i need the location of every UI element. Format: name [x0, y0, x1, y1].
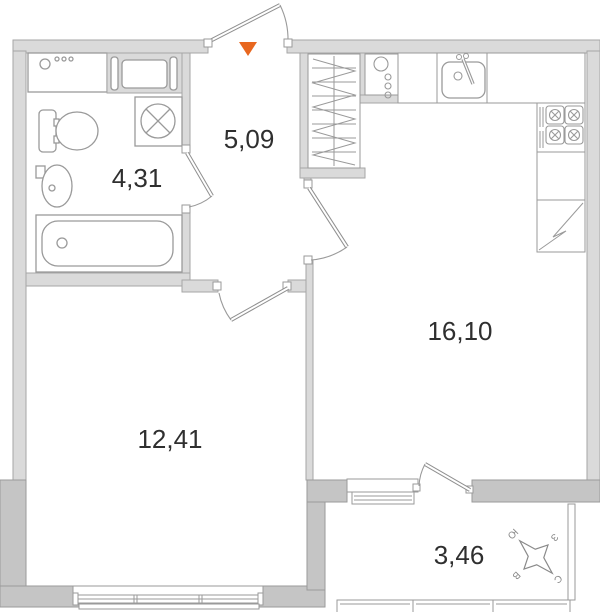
wall-bathroom-bottom [26, 273, 190, 286]
corner-counter-icon [537, 152, 585, 252]
entrance-marker-icon [239, 42, 257, 56]
wardrobe-icon [308, 54, 360, 168]
wall-under-wardrobe [300, 168, 365, 178]
laundry-place-icon [135, 97, 182, 146]
balcony-door [413, 464, 473, 493]
room-door [213, 282, 291, 320]
wall-balcony-top-left [307, 480, 347, 502]
label-bedroom-area: 12,41 [137, 424, 202, 454]
label-hallway-area: 5,09 [224, 124, 275, 154]
kitchen-counter [398, 53, 585, 103]
bathtub-icon [36, 215, 182, 272]
label-bathroom-area: 4,31 [112, 163, 163, 193]
wall-top-left [13, 40, 208, 53]
floor-plan: 4,31 5,09 16,10 12,41 3,46 С Ю З В [0, 0, 600, 612]
washing-machine-icon [28, 53, 107, 92]
window-balcony-door-side [347, 479, 418, 504]
wall-bathroom-right-upper [182, 53, 190, 152]
compass-west-label: З [548, 531, 560, 543]
towel-dryer-icon [107, 53, 182, 93]
water-heater-icon [365, 54, 398, 98]
wall-under-cabinet [360, 95, 400, 103]
stove-icon [537, 103, 585, 152]
compass-south-label: Ю [505, 526, 520, 541]
wall-balcony-top-right [472, 480, 600, 502]
wall-right [587, 51, 600, 480]
kitchen-door [304, 180, 347, 264]
washbasin-icon [36, 165, 72, 207]
window-room [73, 586, 263, 609]
wall-top-right [287, 40, 600, 53]
wall-hall-right [300, 53, 308, 178]
wall-left [13, 51, 26, 480]
label-balcony-area: 3,46 [434, 540, 485, 570]
floor-plan-svg: 4,31 5,09 16,10 12,41 3,46 С Ю З В [0, 0, 600, 612]
toilet-icon [39, 110, 98, 152]
bathroom-door [182, 145, 212, 213]
wall-bathroom-right-lower [182, 207, 190, 276]
label-kitchen-area: 16,10 [427, 316, 492, 346]
compass-east-label: В [509, 569, 522, 582]
entrance-door [204, 5, 292, 47]
wall-partition-room-kitchen [306, 260, 313, 480]
